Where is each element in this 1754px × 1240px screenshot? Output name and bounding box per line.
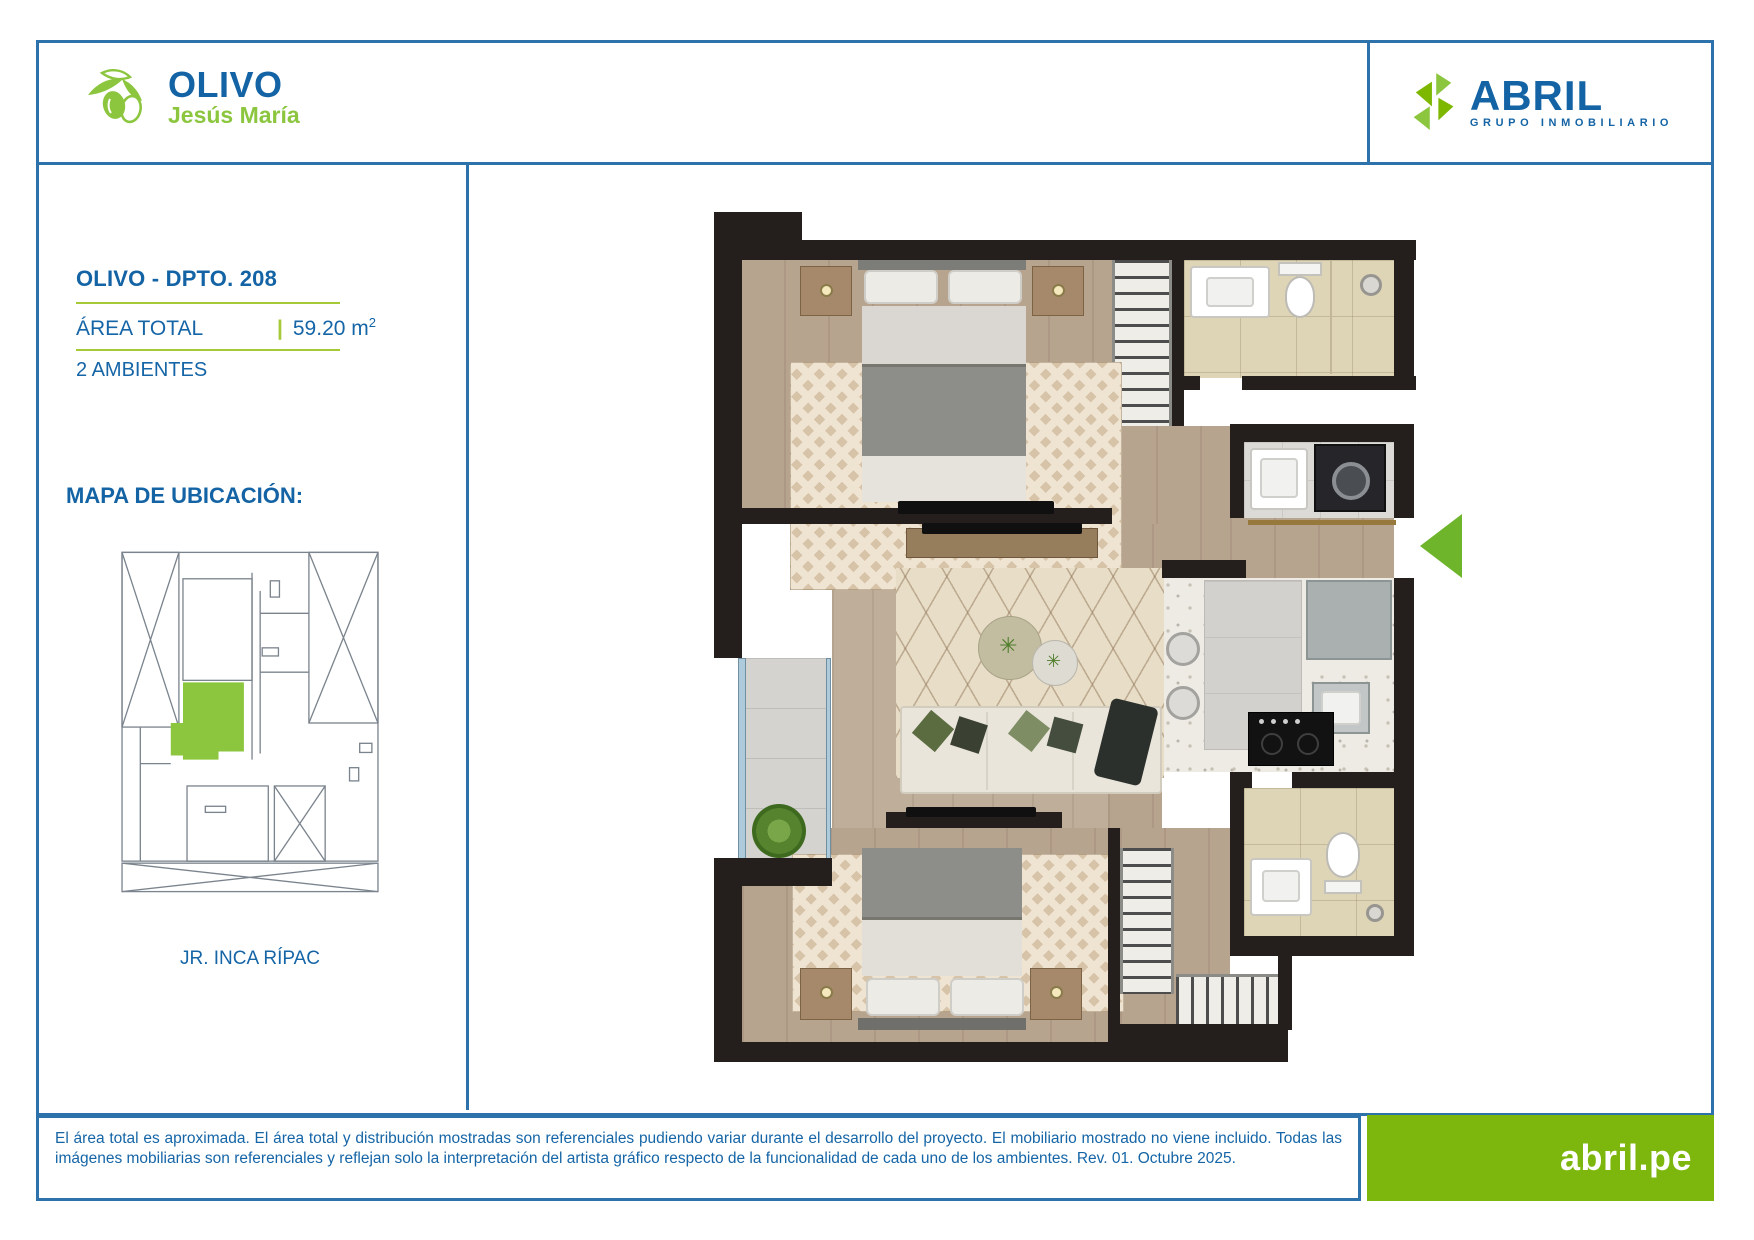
bed-2-sheet [862, 920, 1022, 976]
leaf-sprig-icon [1409, 72, 1457, 135]
disclaimer-box: El área total es aproximada. El área tot… [36, 1115, 1361, 1201]
cushion [1047, 717, 1084, 754]
cushion [950, 716, 988, 754]
pillow [948, 270, 1022, 304]
abril-logo: ABRIL GRUPO INMOBILIARIO [1370, 43, 1712, 163]
exterior-notch [1284, 390, 1414, 426]
wall [1184, 376, 1200, 390]
wall [740, 240, 1416, 260]
area-unit-exponent: 2 [369, 315, 376, 330]
shower-head-icon [1366, 904, 1384, 922]
entry-floor [1230, 518, 1394, 578]
bed-2-blanket [862, 848, 1022, 920]
washing-machine [1314, 444, 1386, 512]
olivo-wordmark: OLIVO [168, 67, 300, 103]
wall [1394, 442, 1414, 518]
wall [1242, 376, 1416, 390]
bed-2-headboard [858, 1018, 1026, 1030]
rooms-label: 2 AMBIENTES [76, 359, 207, 382]
shower-divider [1330, 260, 1332, 374]
closet-2-vertical [1120, 848, 1174, 994]
nightstand [800, 266, 852, 316]
side-table: ✳ [1032, 640, 1078, 686]
wall [714, 1042, 1114, 1062]
toilet-tank [1324, 880, 1362, 894]
nightstand [1030, 968, 1082, 1020]
wall [1108, 1024, 1288, 1062]
area-row: ÁREA TOTAL | 59.20 m2 [76, 315, 376, 341]
lamp-icon [820, 986, 833, 999]
cushion [912, 710, 954, 752]
wall [1230, 424, 1244, 518]
laundry-sink [1250, 448, 1308, 510]
area-separator: | [275, 317, 293, 341]
brochure-page: OLIVO Jesús María ABRIL GRUPO INMOBILIAR… [0, 0, 1754, 1240]
street-label: JR. INCA RÍPAC [120, 948, 380, 970]
toilet-tank [1278, 262, 1322, 276]
tv-living [922, 523, 1082, 534]
abril-tagline: GRUPO INMOBILIARIO [1470, 117, 1673, 129]
lamp-icon [1052, 284, 1065, 297]
stove [1248, 712, 1334, 766]
toilet-bathroom-2 [1326, 832, 1360, 878]
balcony-window [738, 658, 746, 864]
wall [1278, 956, 1292, 1030]
disclaimer-text: El área total es aproximada. El área tot… [55, 1129, 1342, 1170]
stool [1166, 686, 1200, 720]
wall [1172, 260, 1184, 426]
pillow [950, 978, 1024, 1016]
bed-1-sheet [862, 306, 1026, 364]
pillow [866, 978, 940, 1016]
lamp-icon [820, 284, 833, 297]
bed-1-blanket [862, 364, 1026, 456]
wall [1394, 240, 1414, 390]
bed-1-foot [862, 456, 1026, 502]
wall [714, 864, 742, 1042]
sink-bathroom-1 [1190, 266, 1270, 318]
olivo-logo: OLIVO Jesús María [84, 62, 300, 133]
wall [1108, 828, 1120, 1034]
unit-title: OLIVO - DPTO. 208 [76, 266, 277, 292]
bed-1-headboard [858, 260, 1026, 270]
area-value: 59.20 m2 [293, 315, 376, 341]
wall [1394, 578, 1414, 956]
entrance-arrow-icon [1420, 514, 1462, 578]
stool [1166, 632, 1200, 666]
toilet-bathroom-1 [1285, 276, 1315, 318]
floor-plan: ✳ ✳ [600, 212, 1462, 1062]
sofa [900, 706, 1162, 794]
panel-divider [466, 162, 469, 1110]
map-unit-highlight [171, 682, 244, 759]
wall [1230, 772, 1244, 936]
pillow [864, 270, 938, 304]
lamp-icon [1050, 986, 1063, 999]
cushion [1008, 710, 1050, 752]
rule-green-2 [76, 349, 340, 351]
kitchen-counter-steel [1306, 580, 1392, 660]
throw-blanket [1093, 697, 1159, 786]
plant-icon [752, 804, 806, 858]
wall [714, 212, 742, 658]
tv-bedroom-2 [906, 807, 1036, 817]
website-link[interactable]: abril.pe [1560, 1137, 1692, 1179]
rule-green-1 [76, 302, 340, 304]
tv-bedroom-1 [898, 501, 1054, 514]
nightstand [1032, 266, 1084, 316]
wall [1230, 936, 1414, 956]
olive-branch-icon [84, 62, 154, 133]
abril-wordmark: ABRIL [1470, 77, 1673, 115]
area-label: ÁREA TOTAL [76, 317, 203, 341]
map-title: MAPA DE UBICACIÓN: [66, 483, 303, 509]
nightstand [800, 968, 852, 1020]
wall [1162, 560, 1246, 578]
wall [1230, 424, 1414, 442]
closet-2-horizontal [1176, 974, 1278, 1030]
location-map [120, 550, 380, 901]
balcony-sliding-door [826, 658, 831, 864]
wall [1292, 772, 1414, 788]
shower-head-icon [1360, 274, 1382, 296]
website-banner[interactable]: abril.pe [1367, 1115, 1714, 1201]
sink-bathroom-2 [1250, 858, 1312, 916]
olivo-district: Jesús María [168, 103, 300, 128]
entry-door-leaf [1248, 520, 1396, 525]
